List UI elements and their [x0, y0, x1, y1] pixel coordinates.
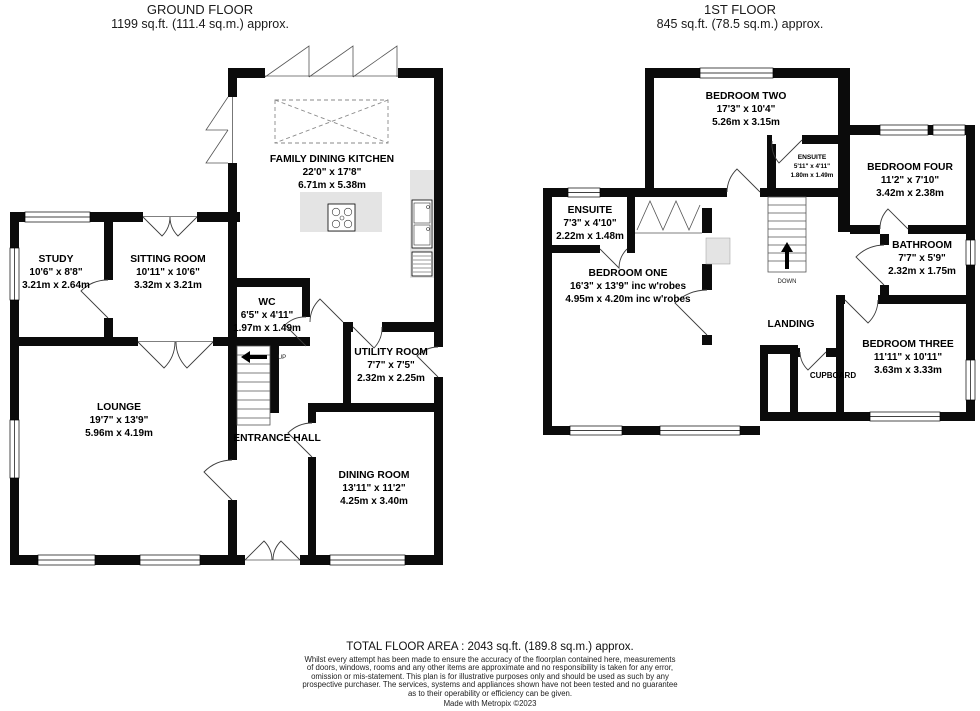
footer: TOTAL FLOOR AREA : 2043 sq.ft. (189.8 sq… [0, 641, 980, 708]
kitchen-dims-metric: 6.71m x 5.38m [298, 180, 366, 191]
bedroom-one-dims-metric: 4.95m x 4.20m inc w'robes [565, 294, 691, 305]
bedroom-two-label: BEDROOM TWO [706, 91, 787, 102]
study-label: STUDY [39, 254, 74, 265]
wardrobe-icon [635, 201, 702, 233]
kitchen-island-icon [300, 192, 382, 232]
stairs-down-label: DOWN [778, 279, 797, 285]
stairs-down-icon [768, 197, 806, 272]
skylight-icon [275, 100, 388, 143]
dining-room-dims-imperial: 13'11" x 11'2" [342, 483, 405, 494]
bathroom-label: BATHROOM [892, 240, 952, 251]
bedroom-two-dims-imperial: 17'3" x 10'4" [717, 104, 776, 115]
dining-room-label: DINING ROOM [339, 470, 410, 481]
dining-room-dims-metric: 4.25m x 3.40m [340, 496, 408, 507]
stairs-up-icon [237, 346, 270, 425]
bathroom-dims-imperial: 7'7" x 5'9" [898, 253, 946, 264]
utility-room-dims-imperial: 7'7" x 7'5" [367, 360, 415, 371]
ensuite-two-dims-imperial: 5'11" x 4'11" [794, 163, 830, 170]
utility-room-dims-metric: 2.32m x 2.25m [357, 373, 425, 384]
kitchen-dims-imperial: 22'0" x 17'8" [303, 167, 362, 178]
landing-label: LANDING [768, 319, 815, 330]
ensuite-two-label: ENSUITE [798, 154, 827, 161]
study-dims-metric: 3.21m x 2.64m [22, 280, 90, 291]
bedroom-three-label: BEDROOM THREE [862, 339, 954, 350]
disclaimer-line: as to their operability or efficiency ca… [0, 690, 980, 698]
wc-label: WC [258, 297, 276, 308]
wc-dims-metric: 1.97m x 1.49m [233, 323, 301, 334]
lounge-dims-metric: 5.96m x 4.19m [85, 428, 153, 439]
ensuite-one-label: ENSUITE [568, 205, 613, 216]
ground-floor-plan: UP FAMILY DINING KITCHEN 22'0" x 17'8" 6… [10, 46, 443, 565]
lounge-label: LOUNGE [97, 402, 141, 413]
bedroom-two-dims-metric: 5.26m x 3.15m [712, 117, 780, 128]
bedroom-three-dims-imperial: 11'11" x 10'11" [874, 352, 942, 363]
ensuite-one-dims-metric: 2.22m x 1.48m [556, 231, 624, 242]
metropix-credit: Made with Metropix ©2023 [0, 699, 980, 708]
chimney-breast-icon [706, 238, 730, 264]
ensuite-two-dims-metric: 1.80m x 1.49m [791, 172, 834, 179]
bifold-doors-icon [206, 46, 398, 163]
stairs-up-label: UP [278, 355, 286, 361]
bedroom-four-dims-metric: 3.42m x 2.38m [876, 188, 944, 199]
study-dims-imperial: 10'6" x 8'8" [29, 267, 82, 278]
bedroom-three-dims-metric: 3.63m x 3.33m [874, 365, 942, 376]
bedroom-four-label: BEDROOM FOUR [867, 162, 953, 173]
wc-dims-imperial: 6'5" x 4'11" [241, 310, 294, 321]
sitting-room-dims-metric: 3.32m x 3.21m [134, 280, 202, 291]
floorplan-drawing: UP FAMILY DINING KITCHEN 22'0" x 17'8" 6… [0, 0, 980, 645]
utility-room-label: UTILITY ROOM [354, 347, 428, 358]
lounge-dims-imperial: 19'7" x 13'9" [90, 415, 149, 426]
first-floor-plan: DOWN BEDROOM TWO 17'3" x 10'4" 5.26m x 3… [543, 68, 975, 435]
bathroom-dims-metric: 2.32m x 1.75m [888, 266, 956, 277]
bedroom-four-dims-imperial: 11'2" x 7'10" [881, 175, 939, 186]
disclaimer: Whilst every attempt has been made to en… [0, 656, 980, 698]
cupboard-label: CUPBOARD [810, 371, 856, 380]
bedroom-one-label: BEDROOM ONE [589, 268, 668, 279]
kitchen-label: FAMILY DINING KITCHEN [270, 154, 394, 165]
kitchen-counter-icon [410, 170, 434, 278]
bedroom-one-dims-imperial: 16'3" x 13'9" inc w'robes [570, 281, 687, 292]
ensuite-one-dims-imperial: 7'3" x 4'10" [563, 218, 616, 229]
sitting-room-dims-imperial: 10'11" x 10'6" [136, 267, 200, 278]
floorplan-page: GROUND FLOOR 1199 sq.ft. (111.4 sq.m.) a… [0, 0, 980, 711]
sitting-room-label: SITTING ROOM [130, 254, 206, 265]
entrance-hall-label: ENTRANCE HALL [233, 433, 321, 444]
total-floor-area: TOTAL FLOOR AREA : 2043 sq.ft. (189.8 sq… [0, 641, 980, 653]
